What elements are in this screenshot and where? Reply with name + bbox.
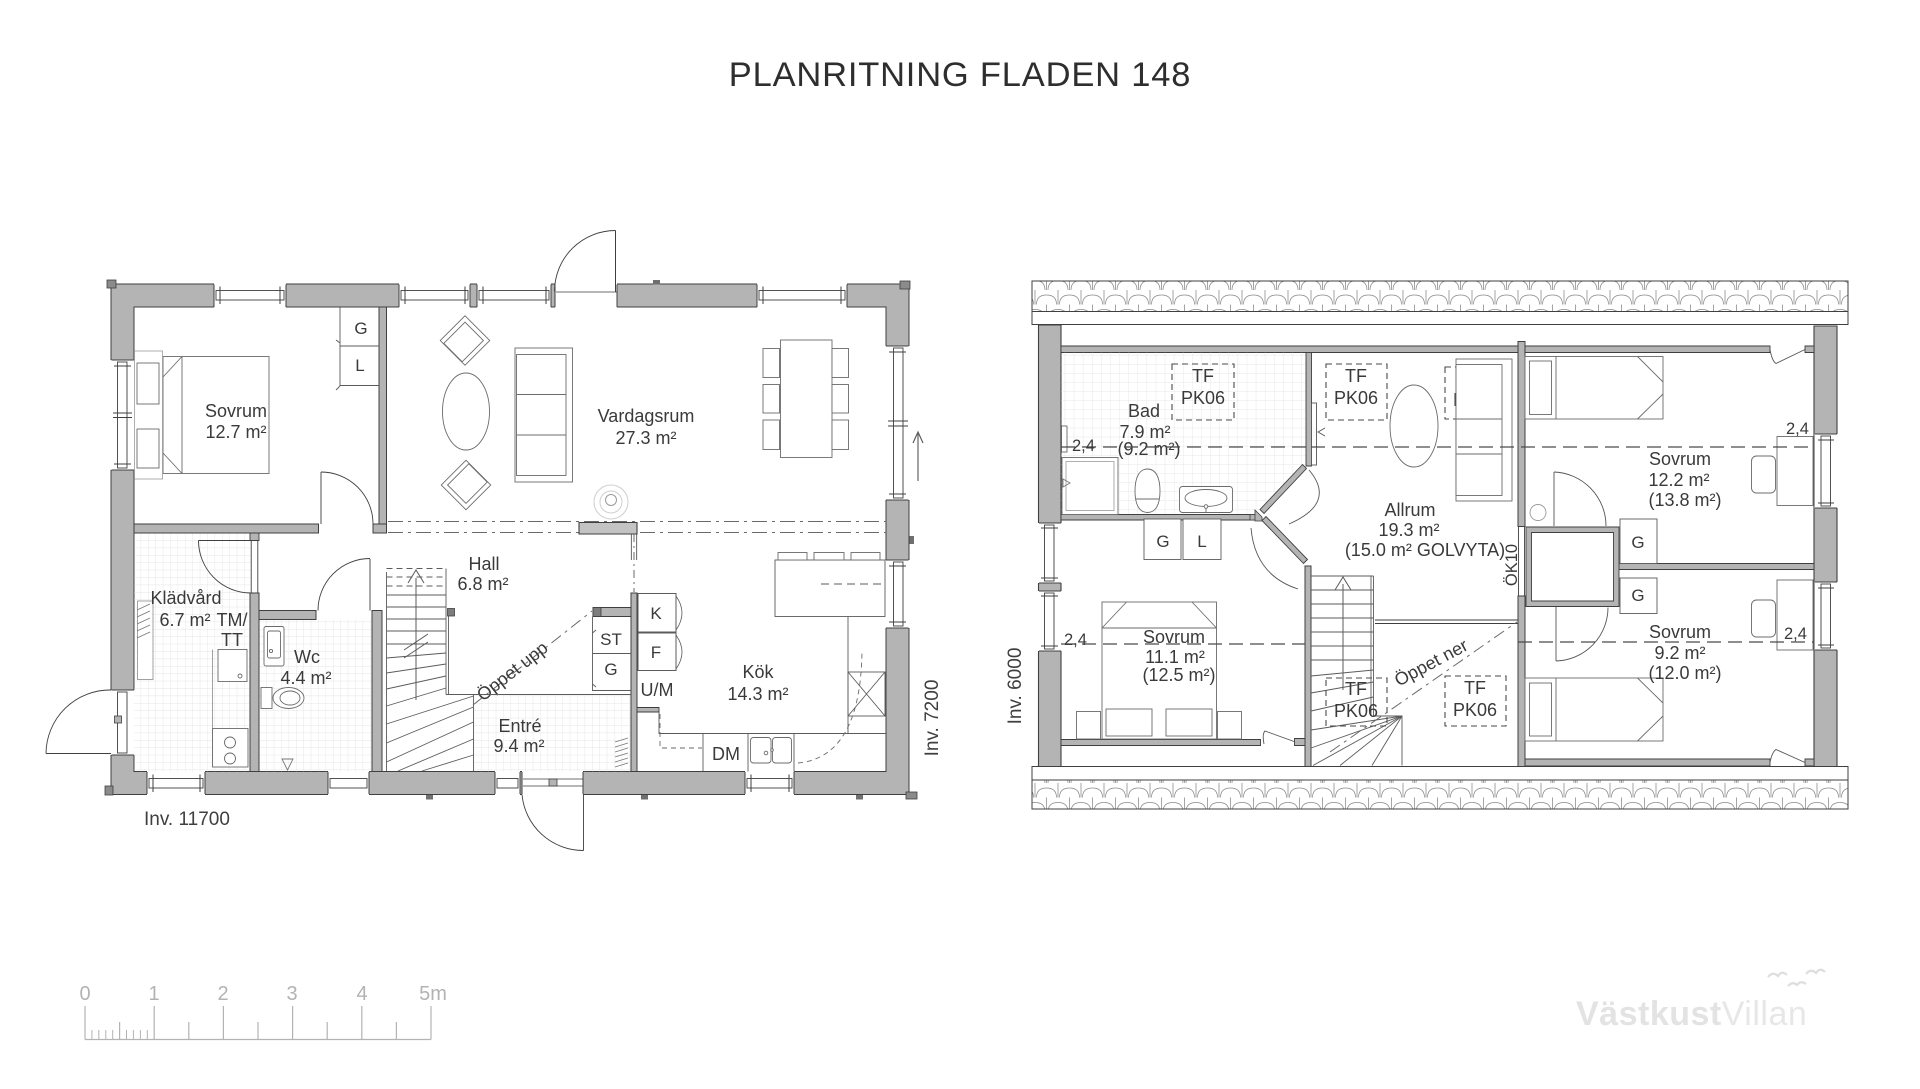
svg-text:6.8 m²: 6.8 m² [457,574,508,594]
svg-text:TF: TF [1464,678,1486,698]
svg-text:4.4 m²: 4.4 m² [280,668,331,688]
svg-text:12.2 m²: 12.2 m² [1648,470,1709,490]
svg-text:G: G [604,660,617,679]
svg-text:K: K [650,604,662,623]
svg-text:Inv. 11700: Inv. 11700 [144,809,230,830]
svg-text:4: 4 [356,983,367,1005]
svg-text:2,4: 2,4 [1786,420,1809,438]
svg-text:PK06: PK06 [1334,388,1378,408]
svg-text:PK06: PK06 [1334,701,1378,721]
svg-text:(9.2 m²): (9.2 m²) [1118,439,1181,459]
svg-text:9.4 m²: 9.4 m² [493,736,544,756]
svg-text:PK06: PK06 [1453,700,1497,720]
svg-text:3: 3 [286,983,297,1005]
svg-text:6.7 m²: 6.7 m² [159,610,210,630]
svg-text:U/M: U/M [641,680,674,700]
svg-text:VästkustVillan: VästkustVillan [1576,995,1807,1033]
svg-text:Allrum: Allrum [1384,500,1435,520]
svg-text:2,4: 2,4 [1072,437,1095,455]
svg-text:Vardagsrum: Vardagsrum [598,406,695,426]
svg-text:(15.0 m² GOLVYTA): (15.0 m² GOLVYTA) [1345,540,1505,560]
svg-text:TF: TF [1192,366,1214,386]
svg-text:L: L [355,356,364,375]
svg-text:14.3 m²: 14.3 m² [727,684,788,704]
svg-text:Entré: Entré [498,716,541,736]
svg-text:(13.8 m²): (13.8 m²) [1648,490,1721,510]
svg-text:TM/: TM/ [217,610,248,630]
svg-text:(12.0 m²): (12.0 m²) [1648,663,1721,683]
svg-text:Wc: Wc [294,647,320,667]
svg-text:0: 0 [79,983,90,1005]
svg-text:Bad: Bad [1128,401,1160,421]
svg-text:G: G [1631,533,1644,552]
svg-text:G: G [354,319,367,338]
svg-text:Sovrum: Sovrum [1649,622,1711,642]
svg-text:12.7 m²: 12.7 m² [205,422,266,442]
svg-text:2,4: 2,4 [1784,625,1807,643]
svg-text:Klädvård: Klädvård [150,588,221,608]
svg-text:9.2 m²: 9.2 m² [1654,643,1705,663]
svg-text:Hall: Hall [468,554,499,574]
svg-text:(12.5 m²): (12.5 m²) [1142,665,1215,685]
svg-text:PLANRITNING FLADEN 148: PLANRITNING FLADEN 148 [729,56,1191,94]
svg-text:11.1 m²: 11.1 m² [1145,647,1205,667]
svg-text:5m: 5m [419,983,447,1005]
svg-text:2,4: 2,4 [1064,631,1087,649]
svg-text:PK06: PK06 [1181,388,1225,408]
svg-text:Kök: Kök [742,662,774,682]
svg-text:Inv. 7200: Inv. 7200 [922,680,943,757]
svg-text:TF: TF [1345,366,1367,386]
svg-text:1: 1 [148,983,159,1005]
svg-text:G: G [1631,586,1644,605]
svg-text:Sovrum: Sovrum [1649,449,1711,469]
svg-text:TF: TF [1345,679,1367,699]
svg-text:ST: ST [600,630,622,649]
svg-text:DM: DM [712,744,740,764]
svg-text:G: G [1156,532,1169,551]
svg-text:TT: TT [221,630,243,650]
svg-text:27.3 m²: 27.3 m² [615,428,676,448]
svg-text:2: 2 [217,983,228,1005]
svg-text:Inv. 6000: Inv. 6000 [1005,648,1026,725]
svg-text:ÖK10: ÖK10 [1503,544,1521,586]
svg-text:L: L [1197,532,1206,551]
svg-text:Sovrum: Sovrum [205,401,267,421]
svg-text:F: F [651,643,661,662]
svg-text:19.3 m²: 19.3 m² [1378,520,1439,540]
